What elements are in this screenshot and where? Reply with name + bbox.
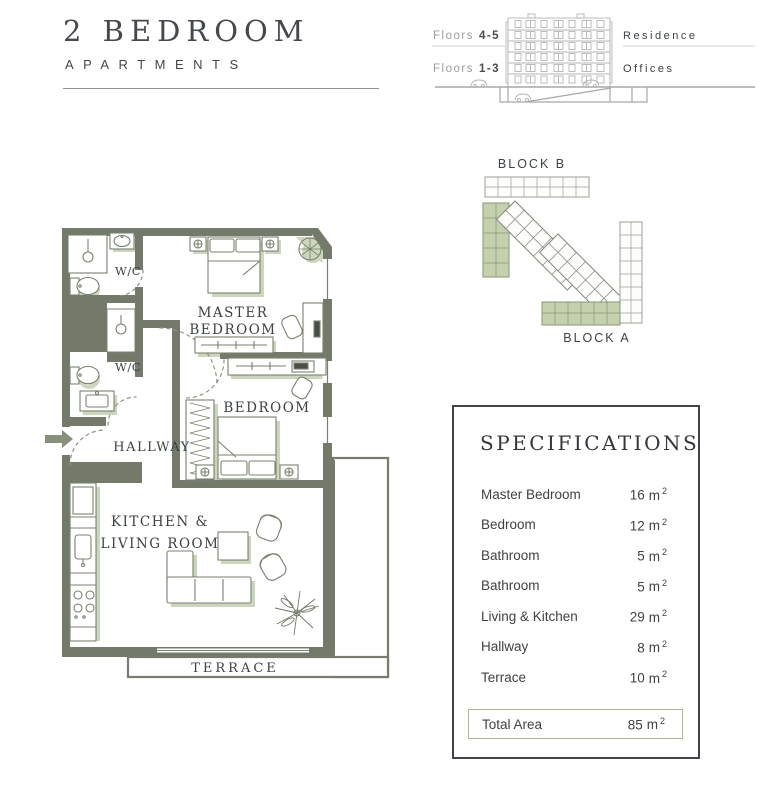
specifications-panel: SPECIFICATIONS Master Bedroom 16m2 Bedro… bbox=[452, 405, 700, 759]
spec-label: Bedroom bbox=[481, 517, 536, 532]
spec-label: Bathroom bbox=[481, 578, 540, 593]
spec-value: 16m2 bbox=[630, 486, 667, 503]
block-a-wing-green bbox=[542, 302, 620, 325]
total-area-box: Total Area 85m2 bbox=[468, 709, 683, 739]
master-chair bbox=[280, 314, 304, 341]
header-divider bbox=[63, 88, 379, 89]
plant-living bbox=[275, 591, 319, 635]
block-a-label: BLOCK A bbox=[563, 331, 631, 345]
spec-value: 10m2 bbox=[630, 669, 667, 686]
block-b-wing-north bbox=[485, 177, 589, 197]
spec-row: Living & Kitchen 29m2 bbox=[454, 601, 698, 632]
spec-row: Master Bedroom 16m2 bbox=[454, 479, 698, 510]
wc-bottom-label: W/C bbox=[115, 360, 141, 374]
page-subtitle: APARTMENTS bbox=[65, 57, 248, 72]
bedroom-lamp-left bbox=[196, 465, 214, 479]
spec-row: Hallway 8m2 bbox=[454, 632, 698, 663]
brochure-page: 2 BEDROOM APARTMENTS Floors4-5 Floors1-3… bbox=[0, 0, 758, 789]
bedroom-dresser bbox=[228, 358, 326, 375]
master-wardrobe bbox=[195, 337, 273, 353]
bedroom-lamp-right bbox=[280, 465, 298, 479]
spec-row: Terrace 10m2 bbox=[454, 662, 698, 693]
floors-bottom-label: Floors1-3 bbox=[433, 63, 500, 75]
residence-label: Residence bbox=[623, 30, 697, 42]
armchair-1 bbox=[255, 512, 284, 543]
site-plan: BLOCK B BLOCK A bbox=[455, 150, 755, 350]
spec-label: Hallway bbox=[481, 639, 528, 654]
spec-value: 5m2 bbox=[637, 578, 667, 595]
total-area-label: Total Area bbox=[482, 717, 542, 732]
apartment-floor-plan: TERRACE bbox=[40, 215, 410, 692]
specifications-title: SPECIFICATIONS bbox=[480, 431, 698, 455]
building-elevation-diagram: Floors4-5 Floors1-3 Residence Offices bbox=[425, 8, 758, 120]
specifications-rows: Master Bedroom 16m2 Bedroom 12m2 Bathroo… bbox=[454, 479, 698, 693]
toilet-bottom bbox=[70, 367, 99, 385]
spec-label: Bathroom bbox=[481, 548, 540, 563]
total-area-value: 85m2 bbox=[628, 716, 665, 733]
offices-label: Offices bbox=[623, 63, 675, 75]
master-bed bbox=[208, 237, 260, 293]
kitchen-counter bbox=[70, 483, 96, 641]
toilet-top bbox=[70, 278, 99, 296]
block-a-wing-east bbox=[620, 222, 642, 323]
block-b-label: BLOCK B bbox=[498, 157, 566, 171]
bedroom-label: BEDROOM bbox=[223, 400, 310, 416]
spec-label: Living & Kitchen bbox=[481, 609, 578, 624]
entrance-arrow-icon bbox=[45, 430, 73, 448]
plant-master bbox=[299, 238, 321, 260]
master-desk bbox=[303, 303, 323, 353]
spec-row: Bedroom 12m2 bbox=[454, 510, 698, 541]
building-section-drawing bbox=[435, 14, 755, 102]
spec-value: 12m2 bbox=[630, 517, 667, 534]
hallway-label: HALLWAY bbox=[113, 440, 191, 455]
spec-row: Bathroom 5m2 bbox=[454, 540, 698, 571]
master-bedroom-label-1: MASTER bbox=[198, 305, 269, 321]
page-title: 2 BEDROOM bbox=[63, 14, 309, 48]
bedroom-chair bbox=[290, 375, 314, 400]
spec-row: Bathroom 5m2 bbox=[454, 571, 698, 602]
kitchen-living-label-1: KITCHEN & bbox=[111, 514, 209, 530]
sink-top bbox=[110, 233, 134, 249]
terrace-label: TERRACE bbox=[191, 661, 279, 676]
master-bedroom-label-2: BEDROOM bbox=[189, 322, 276, 338]
spec-value: 8m2 bbox=[637, 639, 667, 656]
kitchen-living-label-2: LIVING ROOM bbox=[101, 536, 220, 552]
master-nightstand-right bbox=[262, 237, 278, 251]
coffee-table bbox=[218, 532, 248, 560]
wc-top-label: W/C bbox=[115, 264, 141, 278]
furniture bbox=[68, 233, 326, 641]
spec-value: 29m2 bbox=[630, 608, 667, 625]
spec-value: 5m2 bbox=[637, 547, 667, 564]
shower-middle bbox=[107, 309, 135, 352]
spec-label: Master Bedroom bbox=[481, 487, 581, 502]
armchair-2 bbox=[257, 550, 289, 583]
elevation-labels: Floors4-5 Floors1-3 Residence Offices bbox=[433, 30, 697, 75]
master-nightstand-left bbox=[190, 237, 206, 251]
washing-machine bbox=[80, 391, 114, 411]
floors-top-label: Floors4-5 bbox=[433, 30, 500, 42]
shower-top bbox=[68, 235, 107, 273]
spec-label: Terrace bbox=[481, 670, 526, 685]
bedroom-bed bbox=[218, 417, 276, 479]
